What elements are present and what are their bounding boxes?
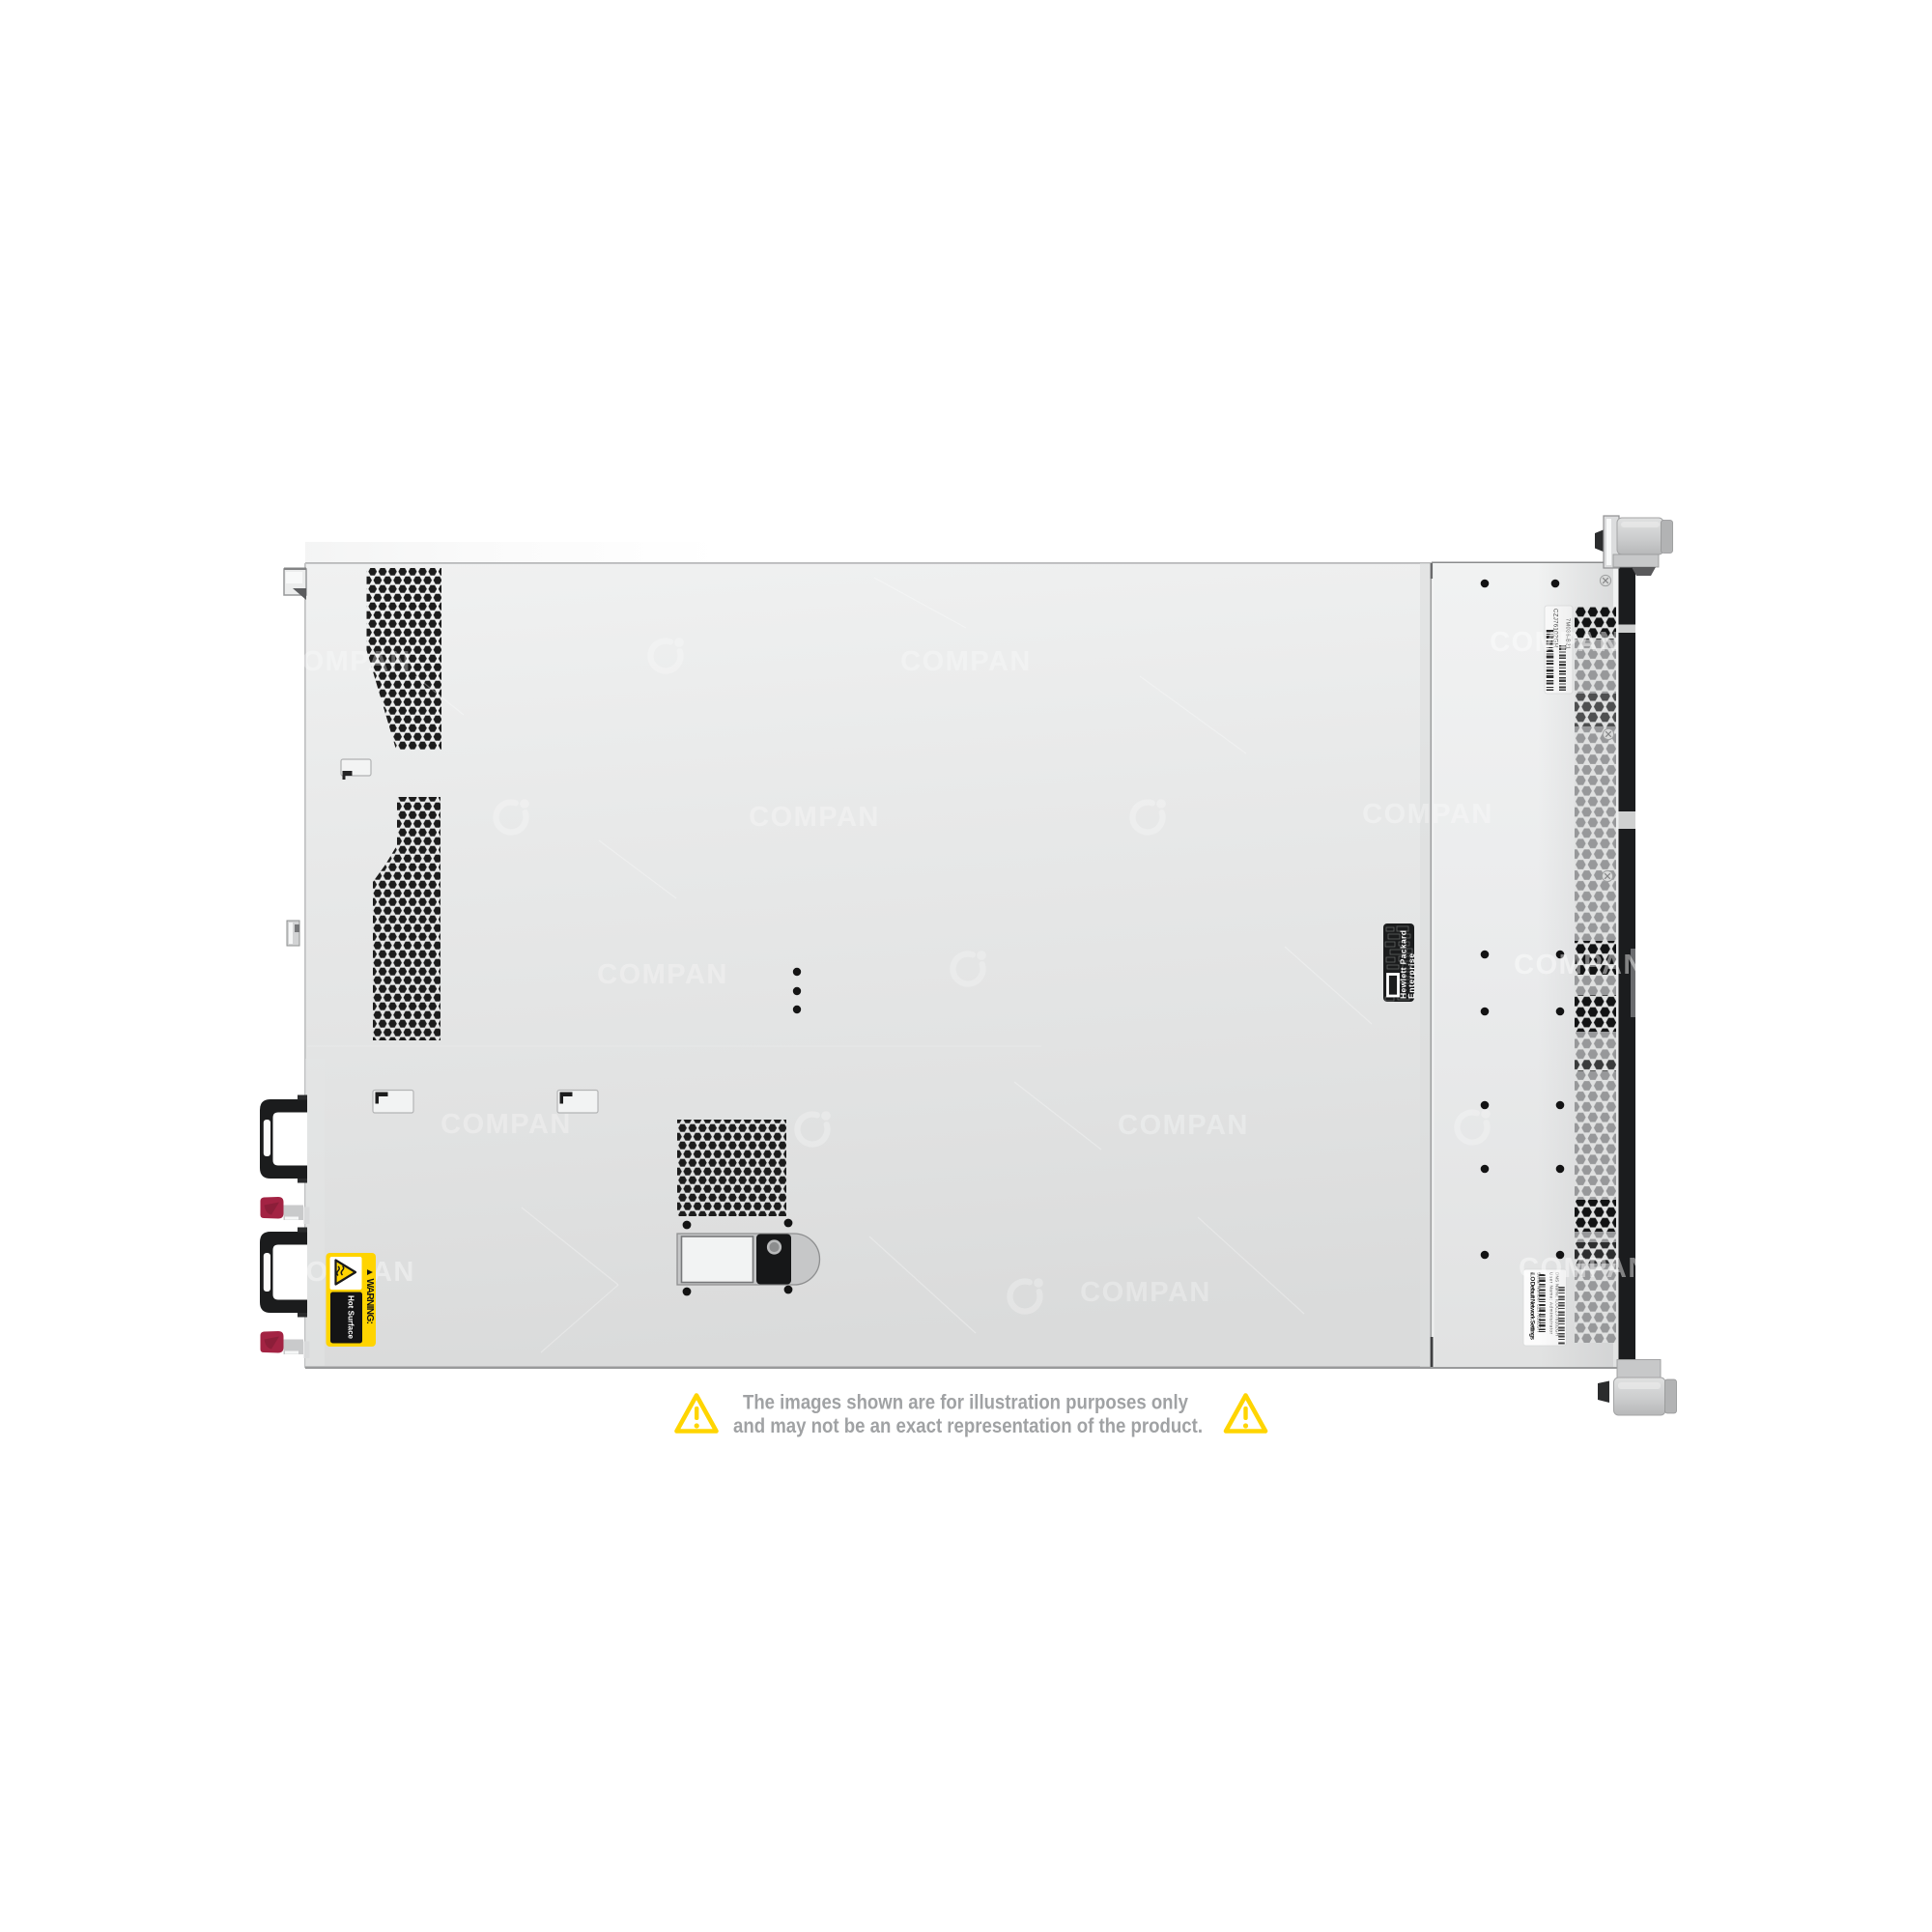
svg-text:COMPAN: COMPAN (1118, 1110, 1249, 1141)
svg-text:COMPAN: COMPAN (280, 646, 412, 677)
svg-text:COMPAN: COMPAN (597, 959, 728, 990)
svg-text:COMPAN: COMPAN (1080, 1277, 1211, 1308)
svg-text:COMPAN: COMPAN (900, 646, 1032, 677)
svg-text:COMPAN: COMPAN (1490, 627, 1621, 658)
svg-text:COMPAN: COMPAN (1514, 950, 1645, 980)
svg-text:Hot Surface: Hot Surface (347, 1295, 355, 1340)
svg-text:The images shown are for illus: The images shown are for illustration pu… (743, 1391, 1188, 1414)
svg-text:COMPAN: COMPAN (440, 1109, 572, 1140)
svg-text:COMPAN: COMPAN (1362, 799, 1493, 830)
svg-text:and may not be an exact repres: and may not be an exact representation o… (733, 1414, 1203, 1437)
svg-text:▲ WARNING:: ▲ WARNING: (364, 1267, 375, 1324)
svg-text:COMPAN: COMPAN (1519, 1253, 1650, 1284)
svg-text:COMPAN: COMPAN (749, 802, 880, 833)
svg-text:Enterprise: Enterprise (1406, 953, 1416, 999)
